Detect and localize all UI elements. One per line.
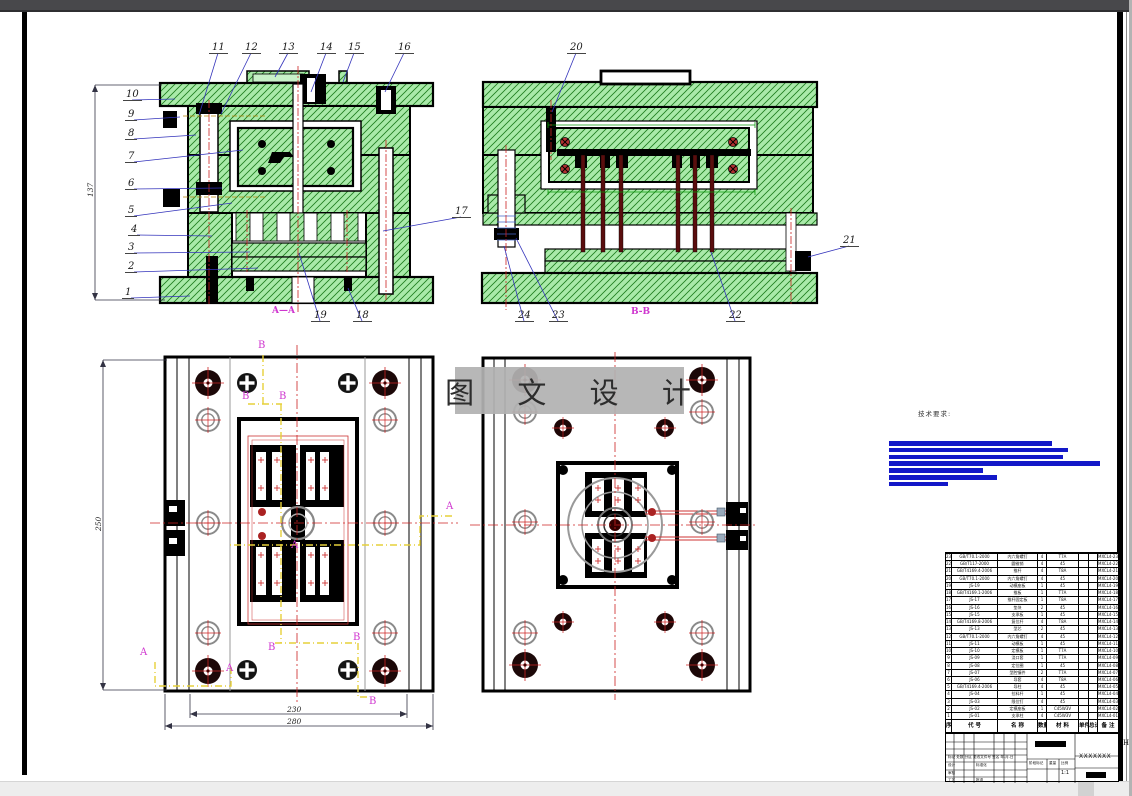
dim-250: 250 (94, 517, 103, 531)
parts-row: 20GB/T70.1-2000内六角螺钉445MXCL4-20 (946, 575, 1118, 582)
parts-row: 23GB/T70.1-2000内六角螺钉4T7AMXCL4-23 (946, 553, 1118, 560)
parts-row: 7JS-07型腔镶件2T7AMXCL4-07 (946, 669, 1118, 676)
label-process: 工艺 (948, 778, 955, 782)
parts-row: 19JS-19动模座板145MXCL4-19 (946, 582, 1118, 589)
section-letter-A: A (291, 540, 298, 551)
dim-137: 137 (86, 183, 95, 197)
tech-req-line-6 (889, 475, 997, 480)
label-check: 审核 (948, 771, 955, 775)
dim-230: 230 (287, 705, 301, 714)
parts-row: 10JS-10定模板1T7AMXCL4-10 (946, 647, 1118, 654)
callout-6: 6 (125, 178, 137, 190)
label-scale: 比例 (1061, 761, 1068, 765)
cad-drawing-viewport: H (0, 0, 1132, 796)
label-design: 设计 (948, 763, 955, 767)
parts-row: 8JS-08定位圈145MXCL4-08 (946, 662, 1118, 669)
tech-req-line-5 (889, 468, 983, 473)
parts-row: 6JS-06导套4T8AMXCL4-06 (946, 676, 1118, 683)
parts-row: 9JS-09浇口套1T7AMXCL4-09 (946, 654, 1118, 661)
callout-15: 15 (345, 42, 364, 54)
label-stage: 阶段标记 (1029, 761, 1043, 765)
tech-req-line-1 (889, 441, 1052, 446)
title-block: 标记 处数 分区 更改文件号 签名 年.月.日 设计 标准化 审核 工艺 批准 … (945, 733, 1119, 782)
callout-16: 16 (395, 42, 414, 54)
callout-8: 8 (125, 128, 137, 140)
parts-row: 13JS-13型芯245MXCL4-13 (946, 625, 1118, 632)
parts-row: 17JS-17推杆固定板1T8AMXCL4-17 (946, 596, 1118, 603)
callout-24: 24 (515, 310, 534, 322)
section-aa-label: A—A (272, 306, 295, 316)
tech-req-line-4 (889, 461, 1100, 466)
parts-row: 15JS-15支承板145MXCL4-15 (946, 611, 1118, 618)
section-letter-B: B (279, 391, 286, 402)
tech-req-line-2 (889, 448, 1068, 453)
label-standard: 标准化 (976, 763, 987, 767)
label-weight: 重量 (1049, 761, 1056, 765)
section-letter-A: A (446, 501, 453, 512)
callout-4: 4 (128, 224, 140, 236)
scale-value: 1:1 (1061, 770, 1069, 776)
label-approve: 批准 (976, 778, 983, 782)
parts-row: 4JS-04拉料杆145MXCL4-04 (946, 690, 1118, 697)
section-letter-B: B (258, 340, 265, 351)
callout-18: 18 (353, 310, 372, 322)
parts-row: 22GB/T117-2000圆锥销445MXCL4-22 (946, 560, 1118, 567)
parts-row: 12GB/T70.1-2000内六角螺钉445MXCL4-12 (946, 633, 1118, 640)
section-letter-A: A (226, 663, 233, 674)
callout-21: 21 (840, 235, 859, 247)
callout-17: 17 (452, 206, 471, 218)
parts-list-header: 序代 号名 称数量材 料单件总计备 注 (946, 719, 1118, 732)
callout-11: 11 (209, 42, 228, 54)
tech-req-line-7 (889, 482, 948, 487)
callout-9: 9 (125, 109, 137, 121)
callout-3: 3 (125, 242, 137, 254)
tech-requirements-label: 技术要求: (918, 408, 951, 418)
parts-row: 18GB/T4169.1-2006推板1T7AMXCL4-18 (946, 589, 1118, 596)
redacted-title-bar (1035, 741, 1066, 747)
tech-req-line-3 (889, 455, 1063, 460)
parts-list-rows: 23GB/T70.1-2000内六角螺钉4T7AMXCL4-2322GB/T11… (946, 553, 1118, 719)
parts-row: 2JS-02定模座板1C45W3VMXCL4-02 (946, 705, 1118, 712)
callout-12: 12 (242, 42, 261, 54)
title-block-mark-row: 标记 处数 分区 更改文件号 签名 年.月.日 (948, 755, 1014, 759)
callout-14: 14 (317, 42, 336, 54)
callout-2: 2 (125, 261, 137, 273)
redacted-code-bar (1086, 772, 1106, 778)
callout-13: 13 (279, 42, 298, 54)
callout-22: 22 (726, 310, 745, 322)
drawing-code: XXXXXXX (1079, 753, 1111, 760)
section-letter-A: A (140, 647, 147, 658)
callout-10: 10 (123, 89, 142, 101)
section-letter-B: B (369, 696, 376, 707)
section-bb-view (482, 71, 817, 303)
section-bb-label: B-B (631, 307, 650, 317)
parts-row: 21GB/T4169.4-2006推杆4T8AMXCL4-21 (946, 567, 1118, 574)
section-letter-B: B (242, 391, 249, 402)
watermark-box: 图 文 设 计 (455, 367, 684, 414)
parts-row: 5GB/T4169.4-2006导柱445MXCL4-05 (946, 683, 1118, 690)
callout-19: 19 (311, 310, 330, 322)
watermark-text: 图 文 设 计 (431, 370, 708, 412)
parts-row: 14GB/T4169.8-2006复位杆4T8AMXCL4-14 (946, 618, 1118, 625)
parts-row: 11JS-11动模板145MXCL4-11 (946, 640, 1118, 647)
callout-20: 20 (567, 42, 586, 54)
callout-5: 5 (125, 205, 137, 217)
callout-23: 23 (549, 310, 568, 322)
section-letter-B: B (268, 642, 275, 653)
callout-1: 1 (122, 287, 134, 299)
section-aa-view (160, 71, 433, 303)
section-letter-B: B (353, 632, 360, 643)
dim-280: 280 (287, 717, 301, 726)
parts-row: 16JS-16垫块245MXCL4-16 (946, 604, 1118, 611)
callout-7: 7 (125, 151, 137, 163)
parts-list-table: 23GB/T70.1-2000内六角螺钉4T7AMXCL4-2322GB/T11… (945, 552, 1119, 733)
parts-row: 3JS-03限位钉445MXCL4-03 (946, 698, 1118, 705)
